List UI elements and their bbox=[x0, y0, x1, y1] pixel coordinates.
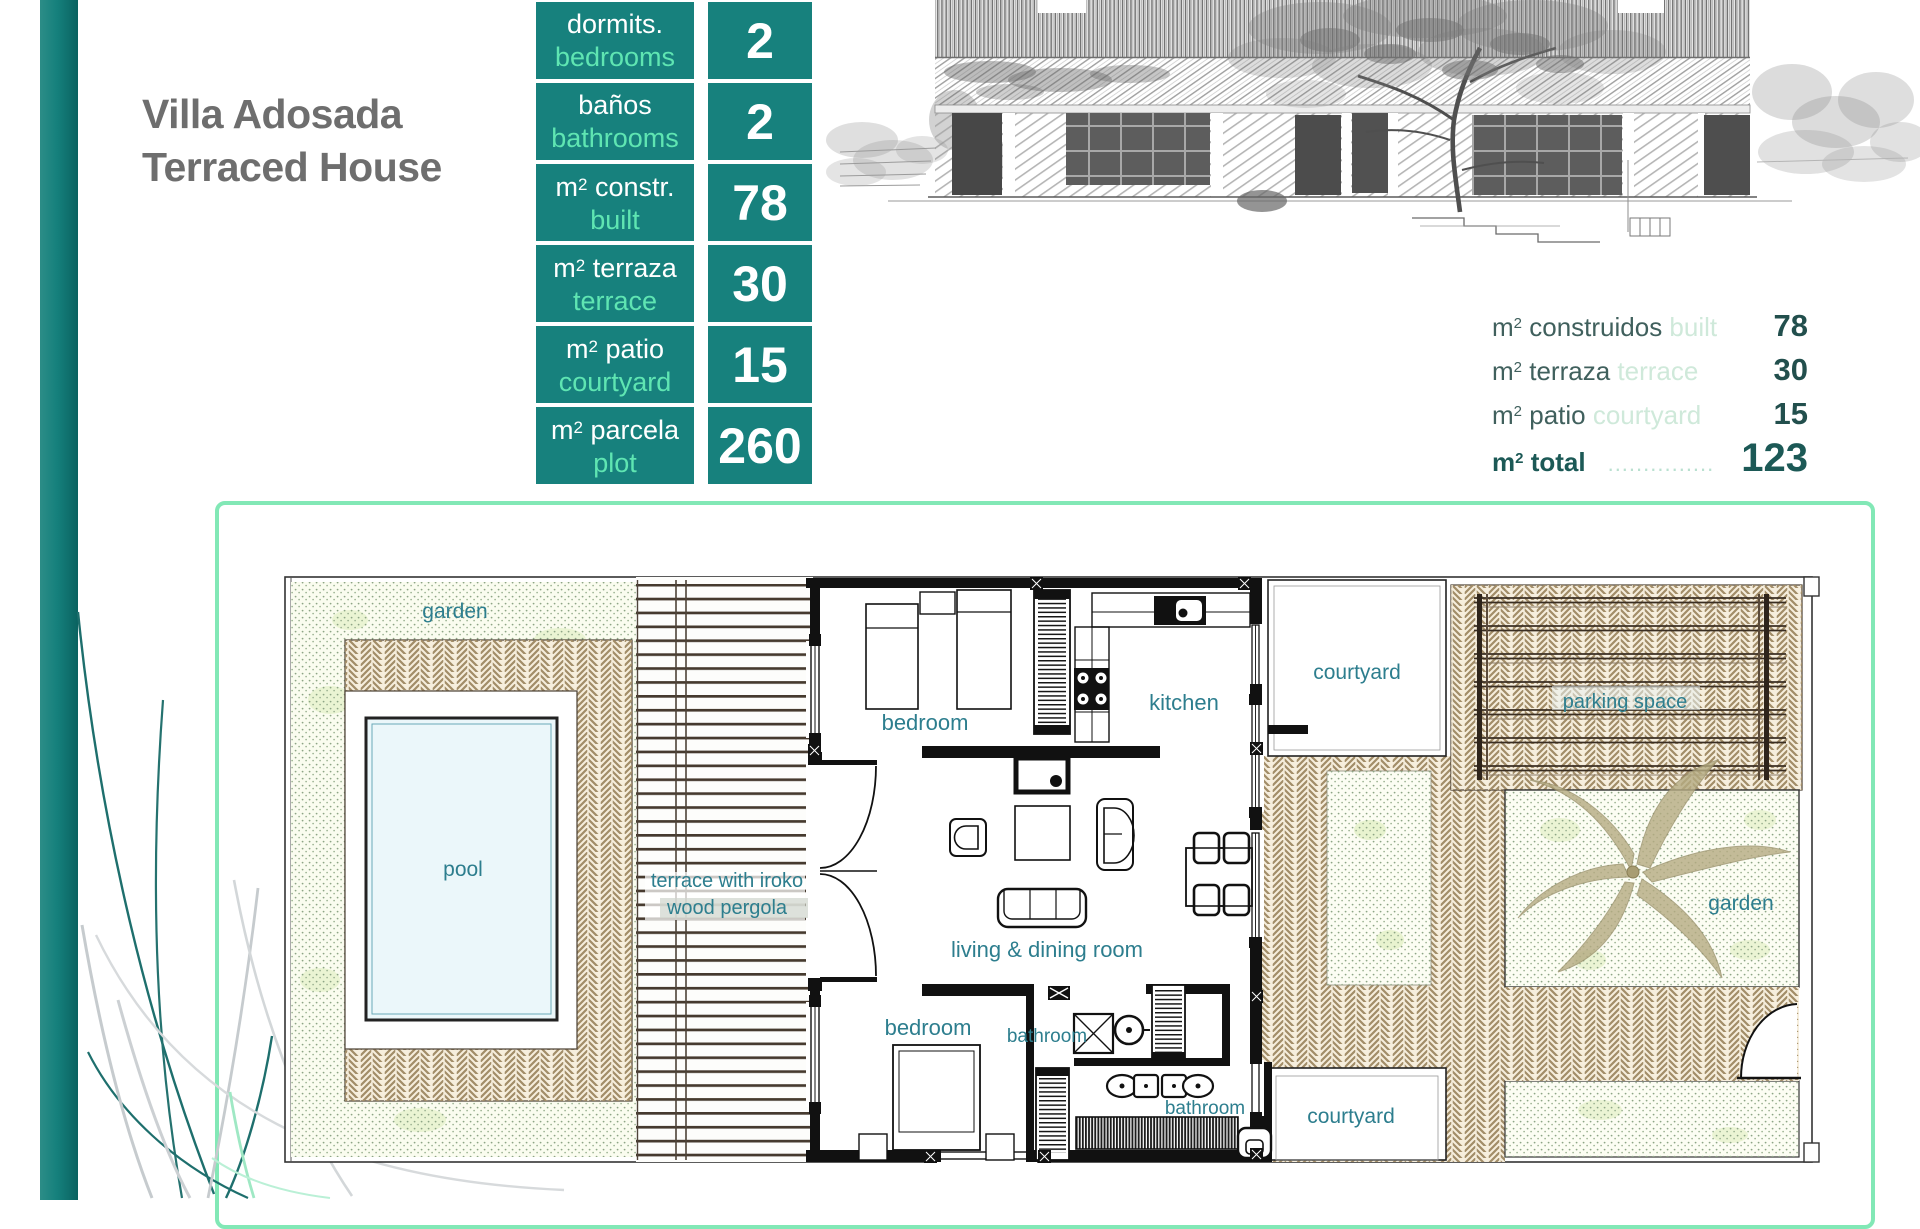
svg-text:courtyard: courtyard bbox=[1313, 661, 1401, 684]
svg-text:pool: pool bbox=[443, 858, 483, 881]
svg-text:bathroom: bathroom bbox=[1165, 1098, 1245, 1119]
svg-text:courtyard: courtyard bbox=[1307, 1105, 1395, 1128]
svg-text:parking space: parking space bbox=[1563, 691, 1688, 713]
svg-text:terrace with iroko: terrace with iroko bbox=[651, 870, 803, 892]
svg-text:garden: garden bbox=[1708, 892, 1773, 915]
svg-text:bathroom: bathroom bbox=[1007, 1026, 1087, 1047]
svg-text:bedroom: bedroom bbox=[882, 710, 969, 735]
svg-text:garden: garden bbox=[422, 600, 487, 623]
svg-text:kitchen: kitchen bbox=[1149, 690, 1219, 715]
svg-text:living & dining room: living & dining room bbox=[951, 937, 1143, 962]
svg-text:bedroom: bedroom bbox=[885, 1015, 972, 1040]
svg-text:wood pergola: wood pergola bbox=[666, 897, 788, 919]
